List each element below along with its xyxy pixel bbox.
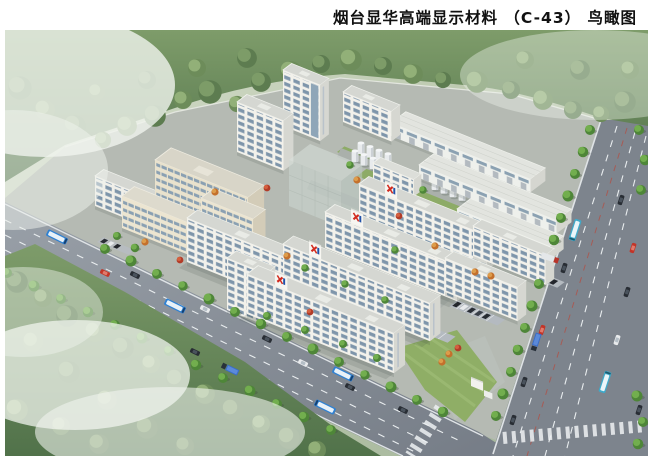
- company-logo-accent: [393, 187, 395, 194]
- company-logo-accent: [283, 278, 285, 285]
- rendering-svg: [5, 30, 648, 456]
- company-logo-accent: [317, 247, 319, 254]
- company-logo-accent: [359, 215, 361, 222]
- page: 烟台显华高端显示材料 （C-43） 鸟瞰图: [0, 0, 650, 460]
- aerial-rendering: [5, 30, 648, 456]
- page-title: 烟台显华高端显示材料 （C-43） 鸟瞰图: [0, 6, 637, 28]
